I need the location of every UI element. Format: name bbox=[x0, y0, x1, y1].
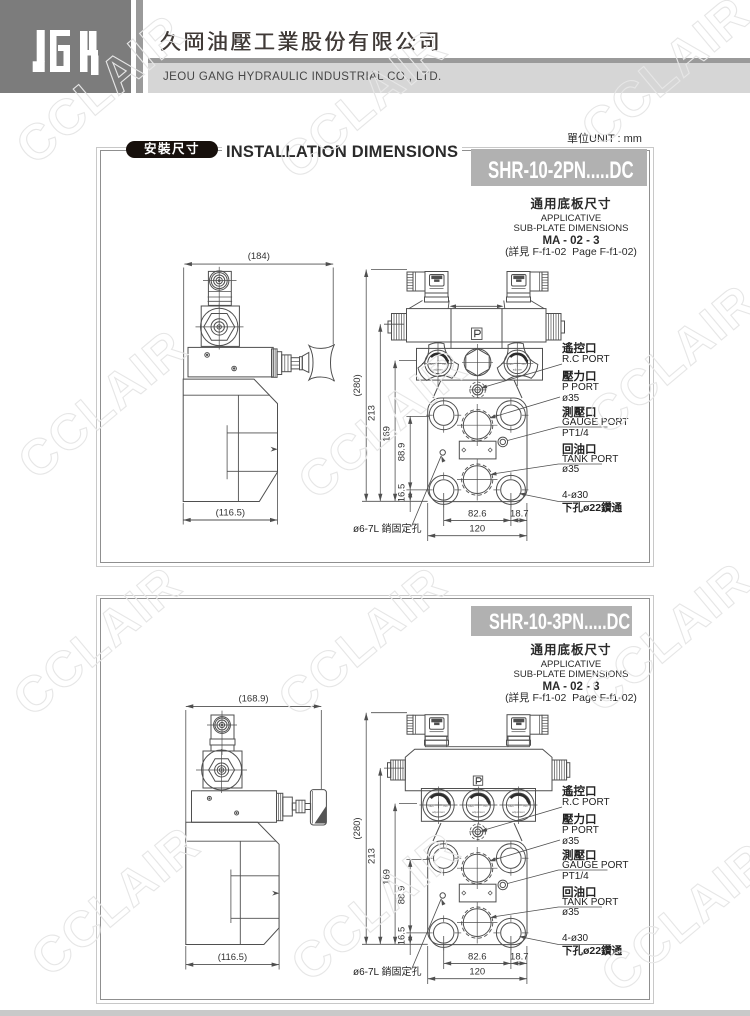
svg-text:(280): (280) bbox=[352, 817, 363, 839]
svg-text:18.7: 18.7 bbox=[510, 508, 529, 519]
svg-text:DEC: DEC bbox=[468, 804, 474, 808]
svg-text:(184): (184) bbox=[248, 251, 270, 262]
svg-text:INC: INC bbox=[523, 804, 528, 808]
svg-text:INC: INC bbox=[522, 362, 527, 366]
svg-text:(116.5): (116.5) bbox=[218, 952, 247, 963]
svg-text:(116.5): (116.5) bbox=[216, 508, 245, 519]
svg-text:18.7: 18.7 bbox=[510, 951, 529, 962]
svg-text:120: 120 bbox=[469, 524, 485, 535]
svg-text:82.6: 82.6 bbox=[468, 951, 487, 962]
svg-text:16.5: 16.5 bbox=[396, 927, 407, 946]
svg-text:82.6: 82.6 bbox=[468, 508, 487, 519]
svg-text:adjustment: adjustment bbox=[432, 810, 445, 814]
svg-text:DEC: DEC bbox=[508, 362, 514, 366]
svg-text:DEC: DEC bbox=[429, 804, 435, 808]
svg-text:adjuster: adjuster bbox=[513, 368, 522, 372]
svg-text:213: 213 bbox=[367, 848, 378, 864]
svg-text:INC: INC bbox=[483, 804, 488, 808]
svg-text:16.5: 16.5 bbox=[396, 484, 407, 503]
svg-text:INC: INC bbox=[443, 804, 448, 808]
svg-text:adjustment: adjustment bbox=[472, 810, 485, 814]
svg-text:120: 120 bbox=[469, 967, 485, 978]
svg-text:(168.9): (168.9) bbox=[238, 693, 268, 704]
svg-text:(280): (280) bbox=[352, 374, 363, 396]
svg-text:adjustment: adjustment bbox=[512, 810, 525, 814]
svg-text:DEC: DEC bbox=[508, 804, 514, 808]
